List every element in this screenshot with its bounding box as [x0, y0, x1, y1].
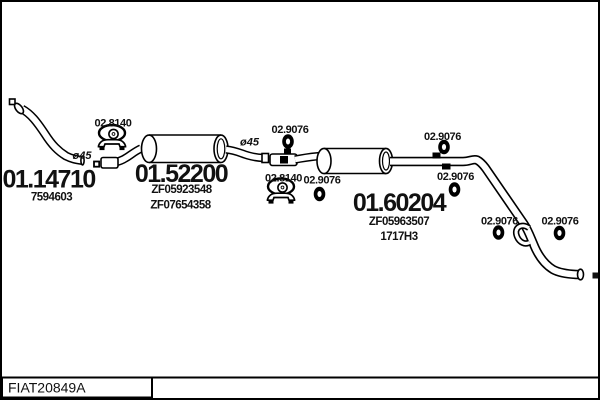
footer: FIAT20849A: [2, 378, 598, 398]
hanger-label: 02.9076: [481, 216, 518, 228]
hanger-label: 02.9076: [272, 124, 309, 136]
oe-ref-centre-muffler-2: ZF07654358: [150, 200, 211, 212]
tail-pipe-tip: [578, 269, 584, 280]
hanger-ring-icon: [554, 226, 566, 240]
hanger-peg: [433, 153, 441, 159]
part-number-rear-muffler: 01.60204: [353, 189, 447, 217]
diameter-label-centre: ø45: [240, 137, 260, 149]
hanger-ring-icon: [282, 134, 294, 148]
hanger-label: 02.9076: [424, 131, 461, 143]
hanger-label: 02.9076: [437, 171, 474, 183]
oe-ref-front-pipe: 7594603: [31, 192, 72, 204]
clamp-label: 02.8140: [265, 173, 302, 185]
clamp-label: 02.8140: [95, 118, 132, 130]
tail-mount-dot: [593, 273, 599, 279]
front-flange-icon: [10, 99, 16, 105]
oe-ref-rear-muffler-1: ZF05963507: [369, 216, 429, 228]
hanger-label: 02.9076: [304, 175, 341, 187]
hanger-peg: [284, 149, 291, 155]
diameter-label-front: ø45: [73, 150, 93, 162]
exhaust-diagram-canvas: 02.8140 02.9076 ø45 01.14710 7594603 01.…: [0, 0, 600, 400]
centre-muffler-outlet: [226, 150, 269, 163]
centre-muffler-body: [142, 135, 229, 163]
sleeve-joint: [101, 158, 118, 169]
front-pipe-inlet: [13, 102, 25, 115]
mid-joint: [270, 149, 297, 166]
hanger-ring-icon: [314, 187, 326, 201]
hanger-ring-icon: [449, 182, 461, 196]
oe-ref-centre-muffler-1: ZF05923548: [151, 184, 212, 196]
rear-muffler-body: [317, 148, 393, 173]
oe-ref-rear-muffler-2: 1717H3: [380, 231, 417, 243]
outlet-connector: [262, 154, 269, 163]
part-number-front-pipe: 01.14710: [3, 166, 96, 194]
hanger-label: 02.9076: [542, 216, 579, 228]
exhaust-diagram: 02.8140 02.9076 ø45 01.14710 7594603 01.…: [2, 2, 598, 398]
hanger-peg: [442, 164, 451, 170]
drawing-id: FIAT20849A: [8, 380, 86, 396]
